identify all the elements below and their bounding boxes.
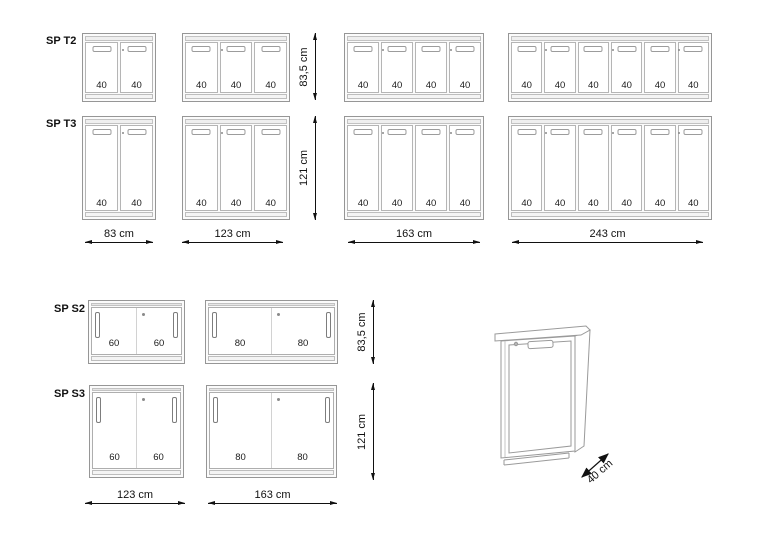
cabinet-door: 40 (511, 125, 542, 211)
door-width-label: 40 (382, 80, 412, 91)
door-handle-icon (172, 397, 177, 423)
cabinet-doors: 40404040 (347, 42, 481, 93)
width-dimension-243cm: 243 cm (512, 242, 703, 243)
door-width-label: 40 (579, 198, 608, 209)
door-handle-icon (212, 312, 217, 338)
cabinet-sp-t2-163cm: 40404040 (344, 33, 484, 102)
door-width-label: 60 (93, 452, 136, 463)
height-dimension-t2: 83,5 cm (315, 33, 316, 100)
lock-icon (122, 132, 124, 134)
cabinet-doors: 6060 (92, 392, 181, 469)
cabinet-door: 40 (511, 42, 542, 93)
door-width-label: 80 (272, 452, 333, 463)
cabinet-door: 40 (578, 42, 609, 93)
door-handle-icon (456, 129, 475, 135)
cabinet-top-edge (85, 36, 153, 41)
door-width-label: 40 (348, 80, 378, 91)
door-handle-icon (325, 397, 330, 423)
lock-icon (545, 132, 547, 134)
lock-icon (450, 49, 452, 51)
cabinet-door: 40 (678, 125, 709, 211)
cabinet-door: 40 (611, 125, 642, 211)
diagram-canvas: SP T2 SP T3 SP S2 SP S3 4040 404040 4040… (0, 0, 759, 538)
row-label-sp-t3: SP T3 (46, 118, 76, 130)
lock-icon (277, 313, 280, 316)
lock-icon (221, 49, 223, 51)
door-handle-icon (173, 312, 178, 338)
door-handle-icon (213, 397, 218, 423)
door-handle-icon (584, 129, 603, 135)
door-width-label: 40 (545, 198, 574, 209)
cabinet-door: 40 (220, 125, 253, 211)
cabinet-plinth (511, 212, 709, 217)
lock-icon (382, 49, 384, 51)
lock-icon (678, 49, 680, 51)
door-handle-icon (388, 46, 407, 52)
cabinet-body-3d (495, 326, 590, 465)
door-handle-icon (261, 129, 280, 135)
cabinet-sp-s2-123cm: 6060 (88, 300, 185, 364)
cabinet-doors: 404040 (185, 125, 287, 211)
door-width-label: 40 (221, 198, 252, 209)
lock-icon (221, 132, 223, 134)
cabinet-top-edge (92, 388, 181, 391)
lock-icon (277, 398, 280, 401)
cabinet-sp-s2-163cm: 8080 (205, 300, 338, 364)
cabinet-door: 40 (544, 42, 575, 93)
cabinet-plinth (185, 212, 287, 217)
door-handle-icon (617, 46, 636, 52)
lock-icon (142, 398, 145, 401)
door-width-label: 40 (645, 198, 674, 209)
height-dimension-label: 121 cm (298, 150, 310, 186)
cabinet-door: 40 (120, 125, 153, 211)
door-width-label: 40 (512, 198, 541, 209)
cabinet-sp-t2-83cm: 4040 (82, 33, 156, 102)
door-width-label: 40 (612, 80, 641, 91)
cabinet-top-edge (511, 119, 709, 124)
door-width-label: 40 (121, 80, 152, 91)
cabinet-side-panel (575, 330, 590, 452)
cabinet-top-edge (511, 36, 709, 41)
cabinet-door: 40 (678, 42, 709, 93)
row-label-sp-t2: SP T2 (46, 35, 76, 47)
cabinet-door: 40 (381, 42, 413, 93)
lock-icon (514, 342, 517, 345)
door-handle-icon (550, 129, 569, 135)
cabinet-plinth (185, 94, 287, 99)
door-width-label: 40 (86, 80, 117, 91)
width-dimension-label: 163 cm (254, 489, 290, 501)
door-handle-icon (684, 46, 703, 52)
cabinet-doors: 8080 (208, 307, 335, 355)
door-width-label: 40 (255, 198, 286, 209)
door-handle-icon (456, 46, 475, 52)
cabinet-plinth (209, 470, 334, 475)
row-label-sp-s3: SP S3 (54, 388, 85, 400)
cabinet-top-edge (185, 36, 287, 41)
cabinet-door: 40 (449, 42, 481, 93)
depth-dimension: 40 cm (582, 454, 615, 486)
height-dimension-label: 83,5 cm (356, 312, 368, 351)
door-width-label: 40 (545, 80, 574, 91)
door-width-label: 40 (450, 198, 480, 209)
cabinet-doors: 404040404040 (511, 125, 709, 211)
door-width-label: 40 (416, 198, 446, 209)
cabinet-door: 40 (85, 125, 118, 211)
door-handle-icon (354, 129, 373, 135)
door-handle-icon (517, 129, 536, 135)
cabinet-sp-t2-243cm: 404040404040 (508, 33, 712, 102)
cabinet-top-edge (209, 388, 334, 391)
cabinet-door: 80 (271, 308, 334, 354)
lock-icon (382, 132, 384, 134)
cabinet-door: 40 (220, 42, 253, 93)
door-width-label: 40 (512, 80, 541, 91)
cabinet-plinth (347, 94, 481, 99)
door-handle-icon (388, 129, 407, 135)
door-width-label: 40 (186, 80, 217, 91)
door-width-label: 80 (210, 452, 271, 463)
row-label-sp-s2: SP S2 (54, 303, 85, 315)
door-handle-icon (550, 46, 569, 52)
door-handle-icon (422, 129, 441, 135)
lock-icon (450, 132, 452, 134)
width-dimension-s-123cm: 123 cm (85, 503, 185, 504)
door-width-label: 40 (450, 80, 480, 91)
cabinet-plinth (85, 94, 153, 99)
cabinet-plinth (85, 212, 153, 217)
cabinet-sp-t3-83cm: 4040 (82, 116, 156, 220)
cabinet-door: 40 (544, 125, 575, 211)
door-handle-icon (528, 340, 553, 349)
door-handle-icon (92, 129, 111, 135)
cabinet-sp-t3-243cm: 404040404040 (508, 116, 712, 220)
width-dimension-s-163cm: 163 cm (208, 503, 337, 504)
door-width-label: 40 (86, 198, 117, 209)
height-dimension-label: 121 cm (356, 413, 368, 449)
door-handle-icon (96, 397, 101, 423)
cabinet-top-edge (347, 119, 481, 124)
height-dimension-label: 83,5 cm (298, 47, 310, 86)
door-handle-icon (227, 46, 246, 52)
cabinet-door: 40 (254, 42, 287, 93)
cabinet-door: 40 (185, 42, 218, 93)
height-dimension-s2: 83,5 cm (373, 300, 374, 364)
cabinet-top-edge (91, 303, 182, 306)
door-handle-icon (517, 46, 536, 52)
lock-icon (612, 49, 614, 51)
cabinet-door: 40 (381, 125, 413, 211)
cabinet-plinth (91, 356, 182, 361)
cabinet-door: 40 (644, 125, 675, 211)
cabinet-door: 40 (85, 42, 118, 93)
door-width-label: 80 (209, 338, 271, 349)
door-width-label: 40 (579, 80, 608, 91)
door-width-label: 40 (348, 198, 378, 209)
door-width-label: 40 (645, 80, 674, 91)
cabinet-door: 60 (93, 393, 136, 468)
cabinet-doors: 4040 (85, 42, 153, 93)
door-handle-icon (584, 46, 603, 52)
cabinet-plinth (92, 470, 181, 475)
cabinet-sp-t3-123cm: 404040 (182, 116, 290, 220)
door-width-label: 60 (92, 338, 136, 349)
door-handle-icon (92, 46, 111, 52)
door-width-label: 40 (382, 198, 412, 209)
cabinet-door: 60 (136, 393, 180, 468)
door-width-label: 40 (679, 198, 708, 209)
door-handle-icon (192, 129, 211, 135)
door-width-label: 80 (272, 338, 334, 349)
cabinet-door: 40 (347, 125, 379, 211)
lock-icon (122, 49, 124, 51)
width-dimension-163cm: 163 cm (348, 242, 480, 243)
cabinet-door: 80 (271, 393, 333, 468)
door-handle-icon (127, 46, 146, 52)
cabinet-door: 80 (209, 308, 271, 354)
cabinet-door: 40 (347, 42, 379, 93)
cabinet-sp-t2-123cm: 404040 (182, 33, 290, 102)
cabinet-top-edge (185, 119, 287, 124)
height-dimension-t3: 121 cm (315, 116, 316, 220)
door-handle-icon (684, 129, 703, 135)
door-handle-icon (326, 312, 331, 338)
cabinet-sp-s3-163cm: 8080 (206, 385, 337, 478)
cabinet-plinth (347, 212, 481, 217)
lock-icon (545, 49, 547, 51)
cabinet-door: 60 (136, 308, 181, 354)
cabinet-sp-s3-123cm: 6060 (89, 385, 184, 478)
door-handle-icon (650, 46, 669, 52)
width-dimension-83cm: 83 cm (85, 242, 153, 243)
perspective-cabinet-drawing: 40 cm (480, 315, 650, 500)
door-handle-icon (192, 46, 211, 52)
door-handle-icon (95, 312, 100, 338)
door-width-label: 40 (416, 80, 446, 91)
width-dimension-label: 243 cm (589, 228, 625, 240)
cabinet-doors: 404040404040 (511, 42, 709, 93)
door-handle-icon (354, 46, 373, 52)
cabinet-door: 40 (644, 42, 675, 93)
door-width-label: 40 (221, 80, 252, 91)
door-width-label: 40 (186, 198, 217, 209)
cabinet-doors: 40404040 (347, 125, 481, 211)
cabinet-door: 80 (210, 393, 271, 468)
cabinet-door (509, 341, 571, 453)
cabinet-door: 40 (415, 42, 447, 93)
width-dimension-label: 123 cm (117, 489, 153, 501)
cabinet-door: 40 (611, 42, 642, 93)
cabinet-doors: 8080 (209, 392, 334, 469)
cabinet-doors: 404040 (185, 42, 287, 93)
cabinet-doors: 4040 (85, 125, 153, 211)
door-handle-icon (227, 129, 246, 135)
cabinet-door: 40 (578, 125, 609, 211)
cabinet-top-edge (347, 36, 481, 41)
width-dimension-123cm: 123 cm (182, 242, 283, 243)
lock-icon (678, 132, 680, 134)
cabinet-top-edge (85, 119, 153, 124)
cabinet-door: 40 (449, 125, 481, 211)
cabinet-doors: 6060 (91, 307, 182, 355)
door-handle-icon (127, 129, 146, 135)
cabinet-top-edge (208, 303, 335, 306)
door-width-label: 60 (137, 452, 180, 463)
width-dimension-label: 163 cm (396, 228, 432, 240)
cabinet-door: 40 (120, 42, 153, 93)
lock-icon (142, 313, 145, 316)
door-handle-icon (422, 46, 441, 52)
door-handle-icon (261, 46, 280, 52)
door-width-label: 40 (121, 198, 152, 209)
door-width-label: 40 (612, 198, 641, 209)
cabinet-door: 40 (415, 125, 447, 211)
cabinet-plinth (208, 356, 335, 361)
door-width-label: 40 (679, 80, 708, 91)
door-width-label: 40 (255, 80, 286, 91)
door-handle-icon (650, 129, 669, 135)
door-width-label: 60 (137, 338, 181, 349)
cabinet-sp-t3-163cm: 40404040 (344, 116, 484, 220)
door-handle-icon (617, 129, 636, 135)
height-dimension-s3: 121 cm (373, 383, 374, 480)
cabinet-door: 40 (185, 125, 218, 211)
lock-icon (612, 132, 614, 134)
width-dimension-label: 83 cm (104, 228, 134, 240)
width-dimension-label: 123 cm (214, 228, 250, 240)
cabinet-door: 40 (254, 125, 287, 211)
cabinet-door: 60 (92, 308, 136, 354)
cabinet-plinth (511, 94, 709, 99)
